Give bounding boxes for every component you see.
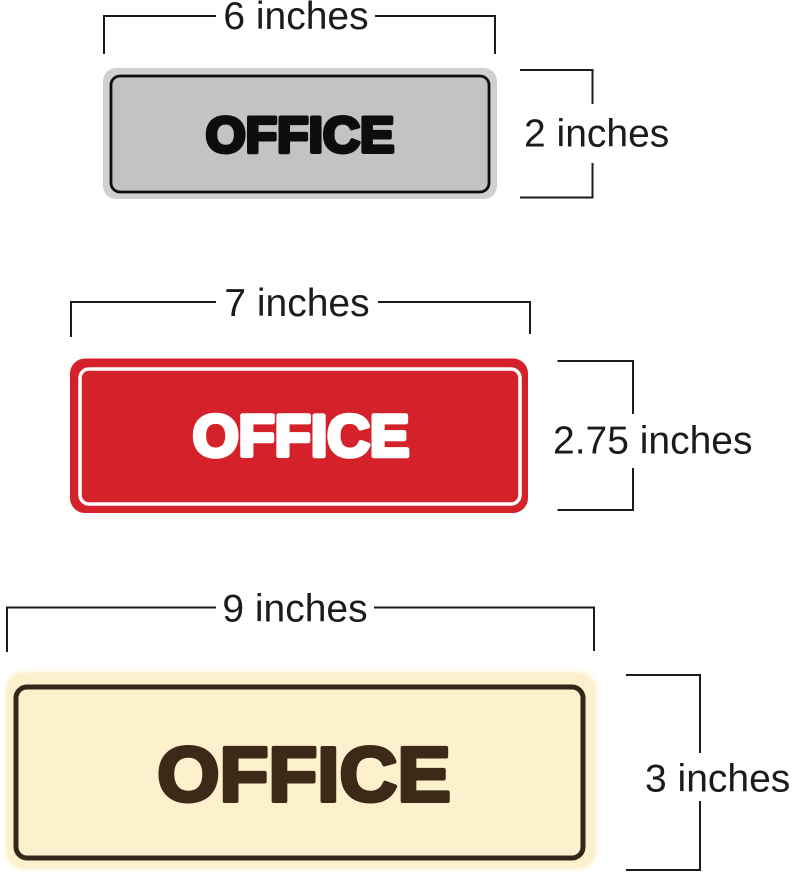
svg-text:2 inches: 2 inches [524,113,669,156]
svg-text:3 inches: 3 inches [645,758,790,801]
svg-text:6 inches: 6 inches [223,0,368,38]
svg-text:7 inches: 7 inches [224,282,369,325]
svg-text:OFFICE: OFFICE [193,404,410,469]
svg-text:OFFICE: OFFICE [206,107,395,163]
svg-text:9 inches: 9 inches [222,588,367,631]
svg-text:2.75 inches: 2.75 inches [553,420,752,463]
svg-text:OFFICE: OFFICE [157,731,451,817]
